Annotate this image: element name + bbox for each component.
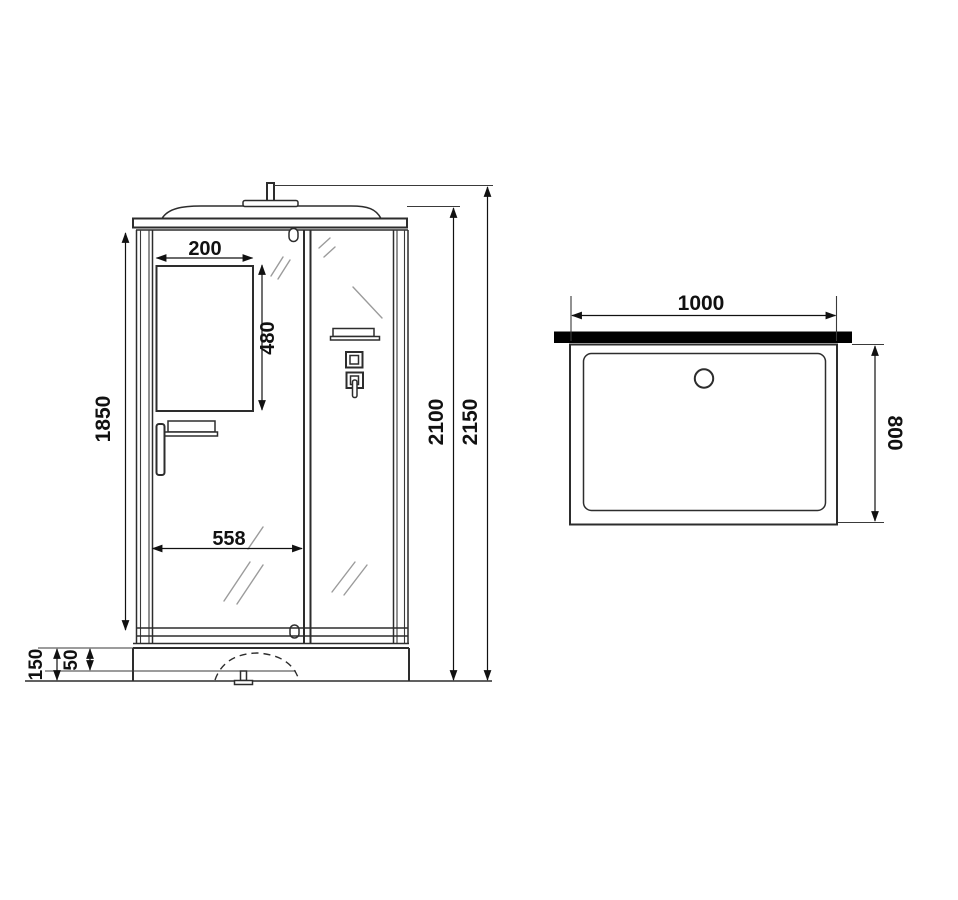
dim-base-height: 150 bbox=[26, 649, 57, 681]
dim-door-width: 558 bbox=[153, 528, 303, 550]
dim-tray-depth: 800 bbox=[838, 345, 906, 523]
window-mirror bbox=[157, 266, 254, 411]
left-frame-column bbox=[137, 230, 153, 643]
roof-dome bbox=[162, 206, 381, 219]
pipe-flange bbox=[243, 201, 298, 207]
leveling-foot bbox=[235, 671, 253, 685]
dim-window-width: 200 bbox=[157, 238, 253, 260]
tray-plan-view: 1000 800 bbox=[554, 292, 906, 525]
front-elevation-view: 200 480 1850 558 2100 2150 150 bbox=[25, 183, 493, 685]
dim-cabin-height: 2100 bbox=[407, 207, 460, 681]
door-handle bbox=[157, 424, 165, 475]
base-apron bbox=[38, 628, 409, 685]
dim-door-width-label: 558 bbox=[212, 528, 245, 550]
dim-window-width-label: 200 bbox=[188, 238, 221, 260]
dim-cabin-height-label: 2100 bbox=[425, 399, 448, 446]
dim-base-height-label: 150 bbox=[26, 649, 47, 681]
dim-glass-height: 1850 bbox=[92, 233, 126, 630]
dim-tray-width-label: 1000 bbox=[678, 292, 725, 315]
base-arch-cutout bbox=[215, 653, 299, 680]
dim-base-inset-label: 50 bbox=[61, 649, 82, 670]
right-shelf bbox=[331, 329, 380, 341]
steam-pipe bbox=[267, 183, 274, 202]
dim-tray-depth-label: 800 bbox=[883, 415, 906, 450]
dim-window-height: 480 bbox=[257, 265, 279, 410]
dim-base-inset: 50 bbox=[61, 649, 90, 671]
left-shelf bbox=[164, 421, 218, 436]
cornice bbox=[133, 219, 407, 228]
center-divider bbox=[304, 230, 311, 643]
dim-glass-height-label: 1850 bbox=[92, 396, 115, 443]
shower-cabin-drawing: 200 480 1850 558 2100 2150 150 bbox=[0, 0, 958, 900]
faucet-lever bbox=[347, 373, 364, 398]
dim-total-height-label: 2150 bbox=[459, 399, 482, 446]
dim-total-height: 2150 bbox=[274, 186, 493, 681]
tray-outer-edge bbox=[570, 345, 837, 525]
control-switch bbox=[346, 352, 363, 368]
dim-window-height-label: 480 bbox=[257, 321, 279, 354]
wall-bar bbox=[554, 332, 852, 344]
roof-assembly bbox=[133, 183, 408, 230]
hinge-top-icon bbox=[289, 229, 298, 242]
technical-drawing-canvas: 200 480 1850 558 2100 2150 150 bbox=[0, 0, 958, 900]
right-frame-column bbox=[394, 230, 409, 643]
